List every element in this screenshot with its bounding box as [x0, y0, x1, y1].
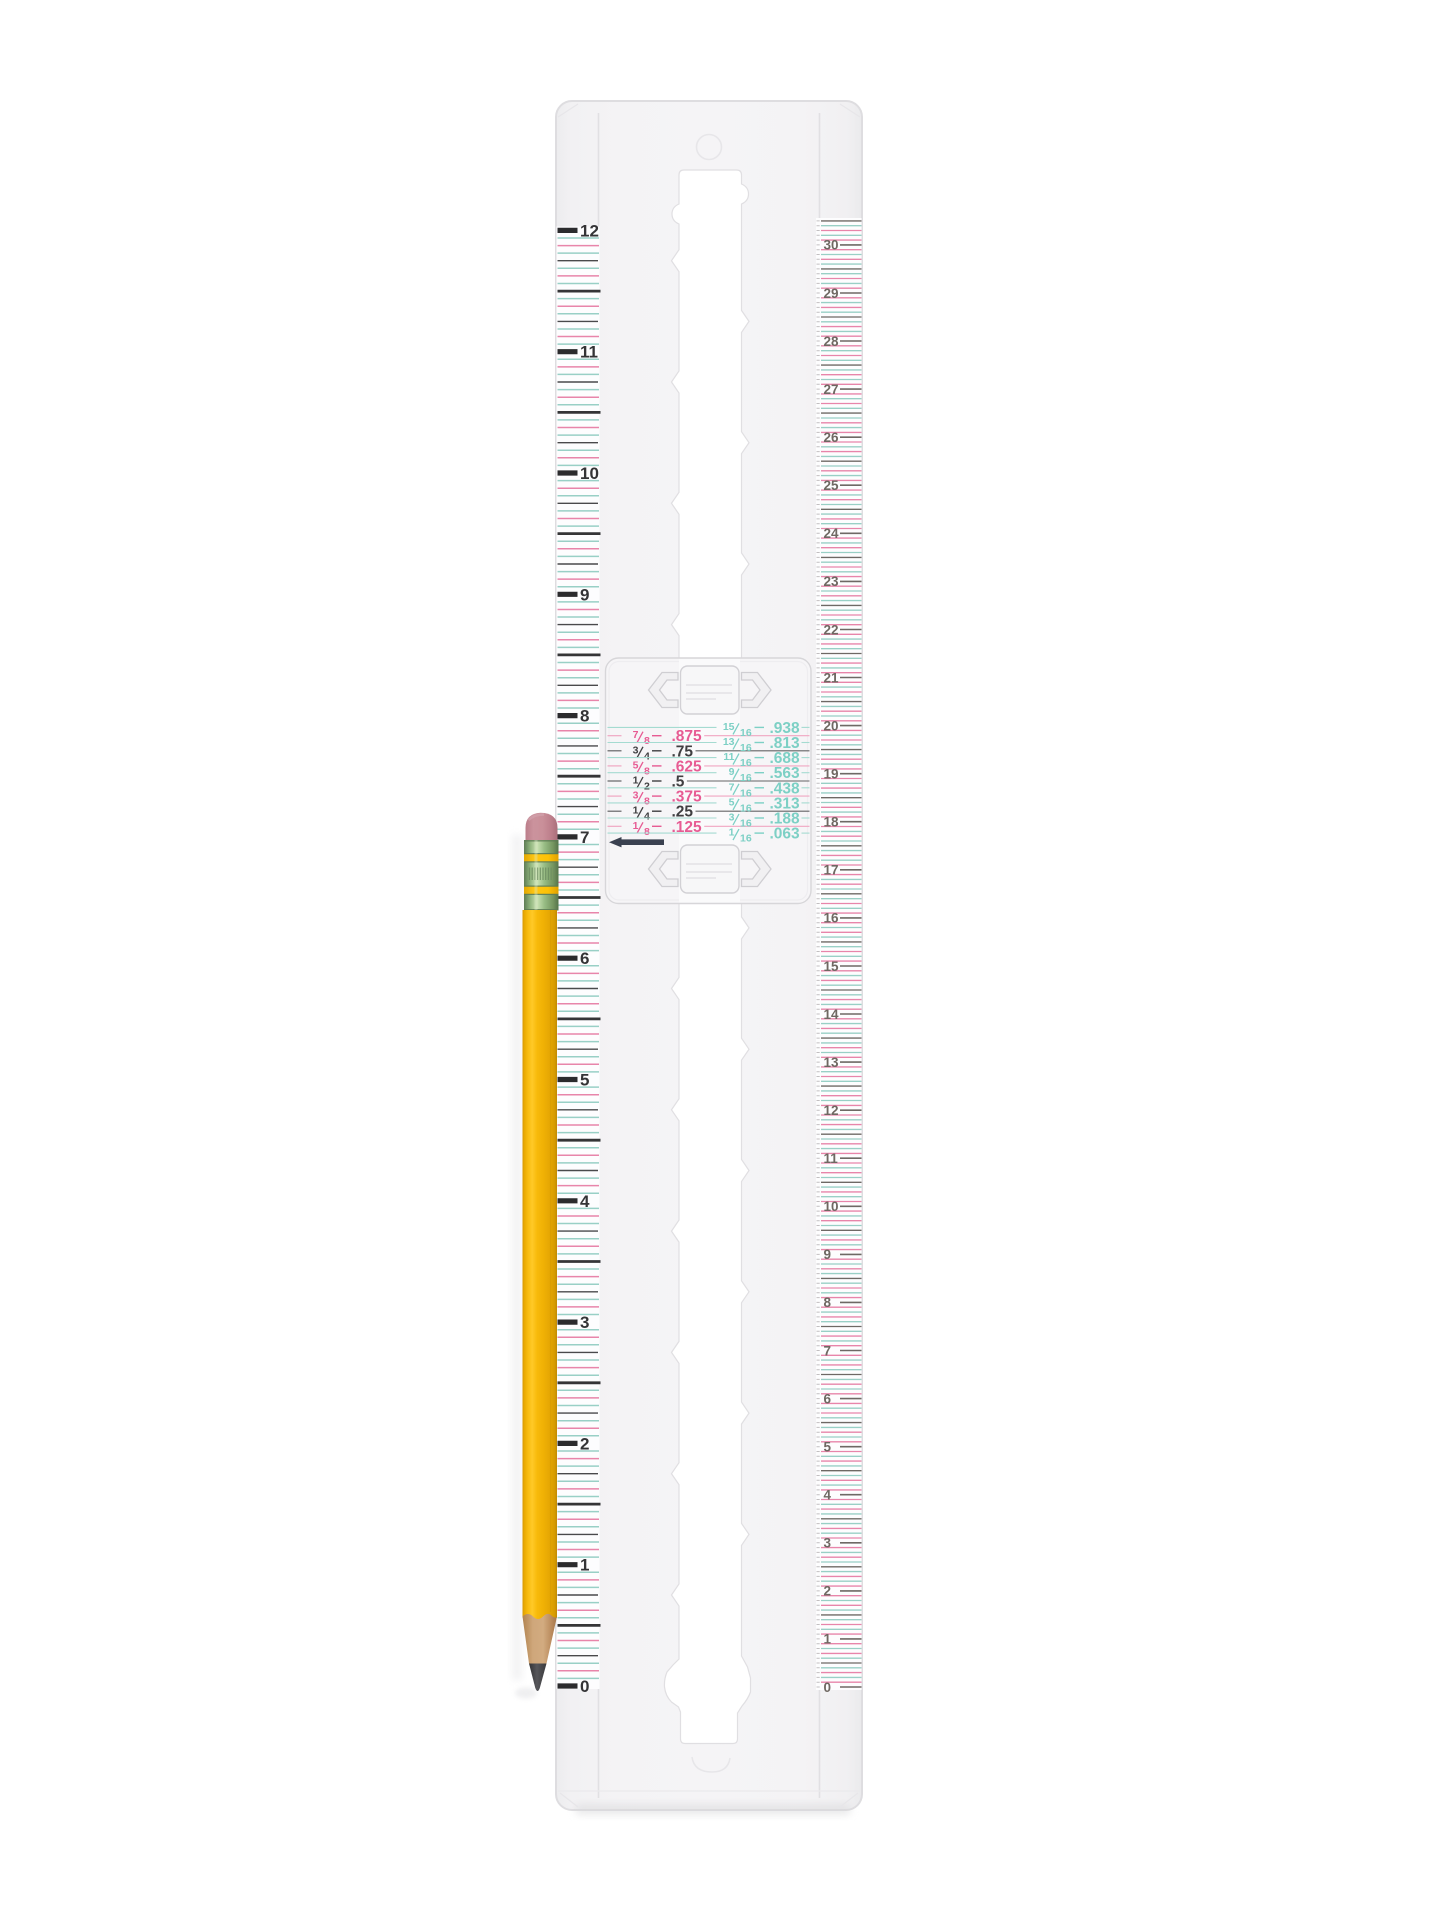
svg-text:19: 19: [824, 767, 839, 782]
svg-text:0: 0: [580, 1677, 589, 1696]
svg-text:11: 11: [824, 1151, 839, 1166]
svg-text:4: 4: [580, 1192, 590, 1211]
svg-text:2: 2: [644, 781, 650, 793]
svg-text:2: 2: [580, 1434, 589, 1453]
svg-text:27: 27: [824, 382, 839, 397]
svg-text:13: 13: [824, 1055, 840, 1070]
svg-text:0: 0: [824, 1680, 832, 1695]
svg-text:29: 29: [824, 286, 839, 301]
svg-text:26: 26: [824, 430, 840, 445]
svg-text:10: 10: [580, 464, 599, 483]
svg-text:25: 25: [824, 478, 840, 493]
svg-text:8: 8: [644, 765, 650, 777]
svg-text:18: 18: [824, 815, 840, 830]
svg-text:7: 7: [633, 729, 639, 741]
svg-text:24: 24: [824, 526, 840, 541]
svg-text:14: 14: [824, 1007, 840, 1022]
svg-text:16: 16: [740, 818, 752, 830]
svg-text:2: 2: [824, 1584, 832, 1599]
svg-text:5: 5: [824, 1440, 832, 1455]
svg-text:1: 1: [824, 1632, 832, 1647]
svg-text:3: 3: [633, 744, 639, 756]
svg-text:4: 4: [644, 811, 650, 823]
svg-text:13: 13: [723, 736, 735, 748]
svg-text:16: 16: [740, 727, 752, 739]
svg-text:5: 5: [729, 796, 735, 808]
svg-text:7: 7: [729, 781, 735, 793]
svg-text:5: 5: [633, 759, 639, 771]
svg-text:4: 4: [644, 750, 650, 762]
svg-text:7: 7: [824, 1343, 832, 1358]
svg-text:1: 1: [729, 827, 735, 839]
svg-text:17: 17: [824, 863, 839, 878]
svg-text:1: 1: [633, 775, 639, 787]
svg-text:16: 16: [740, 757, 752, 769]
svg-text:1: 1: [633, 820, 639, 832]
svg-text:16: 16: [824, 911, 840, 926]
svg-text:6: 6: [580, 949, 589, 968]
svg-text:12: 12: [580, 221, 599, 240]
svg-text:9: 9: [824, 1247, 832, 1262]
svg-text:23: 23: [824, 574, 840, 589]
svg-text:28: 28: [824, 334, 840, 349]
svg-text:16: 16: [740, 742, 752, 754]
svg-text:16: 16: [740, 833, 752, 845]
svg-text:8: 8: [644, 735, 650, 747]
svg-text:8: 8: [644, 826, 650, 838]
svg-text:16: 16: [740, 772, 752, 784]
svg-text:22: 22: [824, 622, 839, 637]
svg-text:5: 5: [580, 1071, 589, 1090]
svg-text:3: 3: [580, 1313, 589, 1332]
svg-text:1: 1: [580, 1556, 589, 1575]
svg-text:16: 16: [740, 802, 752, 814]
svg-text:15: 15: [824, 959, 840, 974]
svg-text:8: 8: [644, 796, 650, 808]
svg-text:21: 21: [824, 670, 840, 685]
svg-text:10: 10: [824, 1199, 839, 1214]
svg-text:6: 6: [824, 1391, 832, 1406]
svg-text:4: 4: [824, 1488, 832, 1503]
svg-text:7: 7: [580, 828, 589, 847]
svg-text:8: 8: [824, 1295, 832, 1310]
svg-text:12: 12: [824, 1103, 839, 1118]
svg-text:1: 1: [633, 805, 639, 817]
svg-text:11: 11: [723, 751, 734, 763]
svg-text:15: 15: [723, 721, 735, 733]
svg-text:9: 9: [729, 766, 735, 778]
svg-text:.063: .063: [770, 826, 801, 843]
svg-text:30: 30: [824, 238, 839, 253]
svg-text:9: 9: [580, 585, 589, 604]
svg-text:3: 3: [824, 1536, 832, 1551]
svg-text:3: 3: [729, 812, 735, 824]
svg-text:8: 8: [580, 707, 589, 726]
svg-text:20: 20: [824, 718, 839, 733]
svg-text:11: 11: [580, 343, 598, 362]
svg-text:3: 3: [633, 790, 639, 802]
svg-text:16: 16: [740, 787, 752, 799]
